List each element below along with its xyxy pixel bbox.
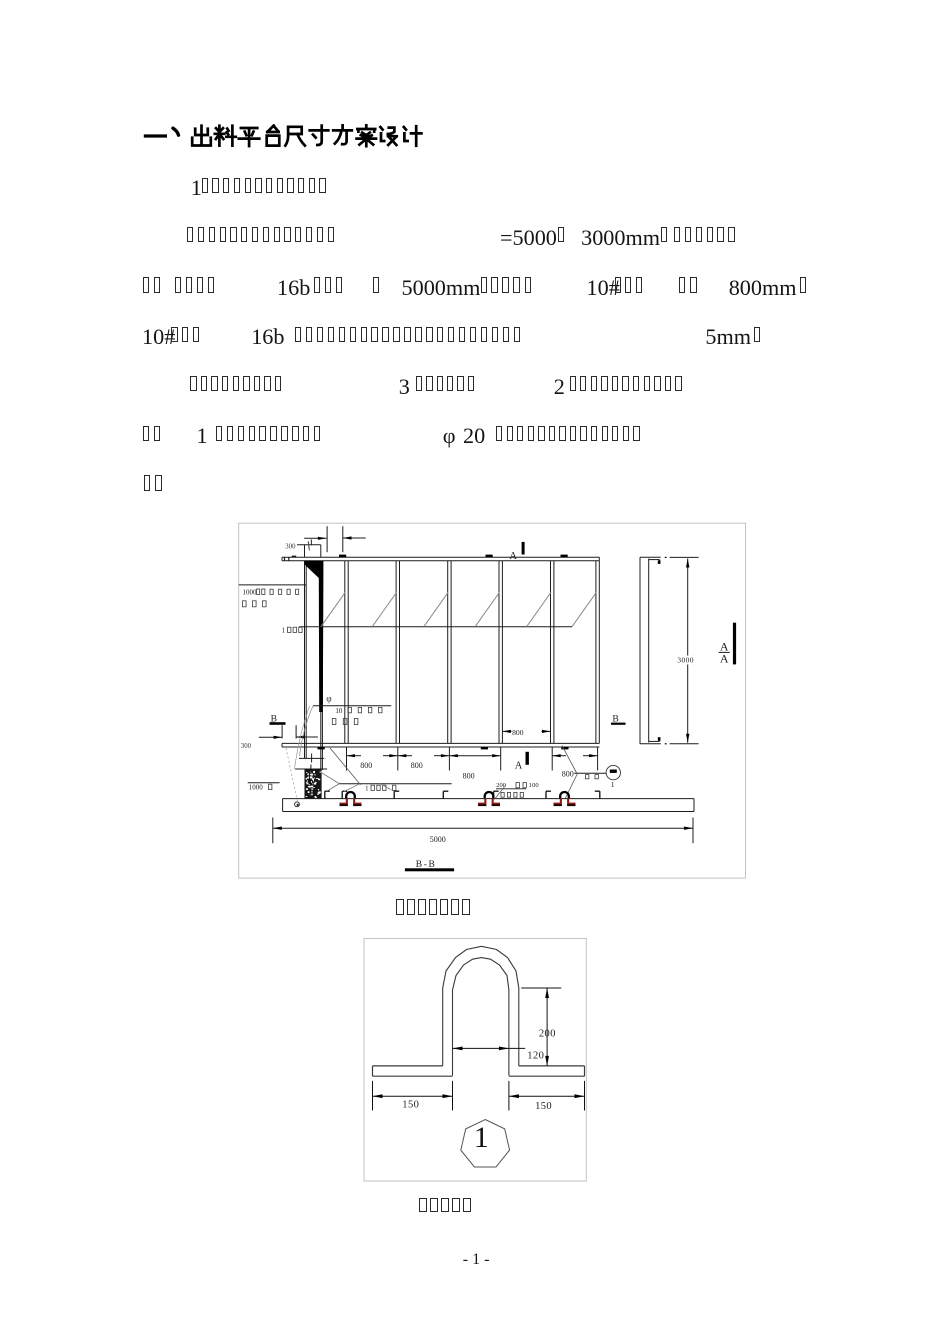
svg-text:1: 1 bbox=[474, 1121, 489, 1154]
svg-text:150: 150 bbox=[402, 1100, 419, 1111]
svg-text:120: 120 bbox=[527, 1050, 544, 1061]
svg-text:200: 200 bbox=[539, 1029, 556, 1040]
svg-text:150: 150 bbox=[535, 1101, 552, 1112]
